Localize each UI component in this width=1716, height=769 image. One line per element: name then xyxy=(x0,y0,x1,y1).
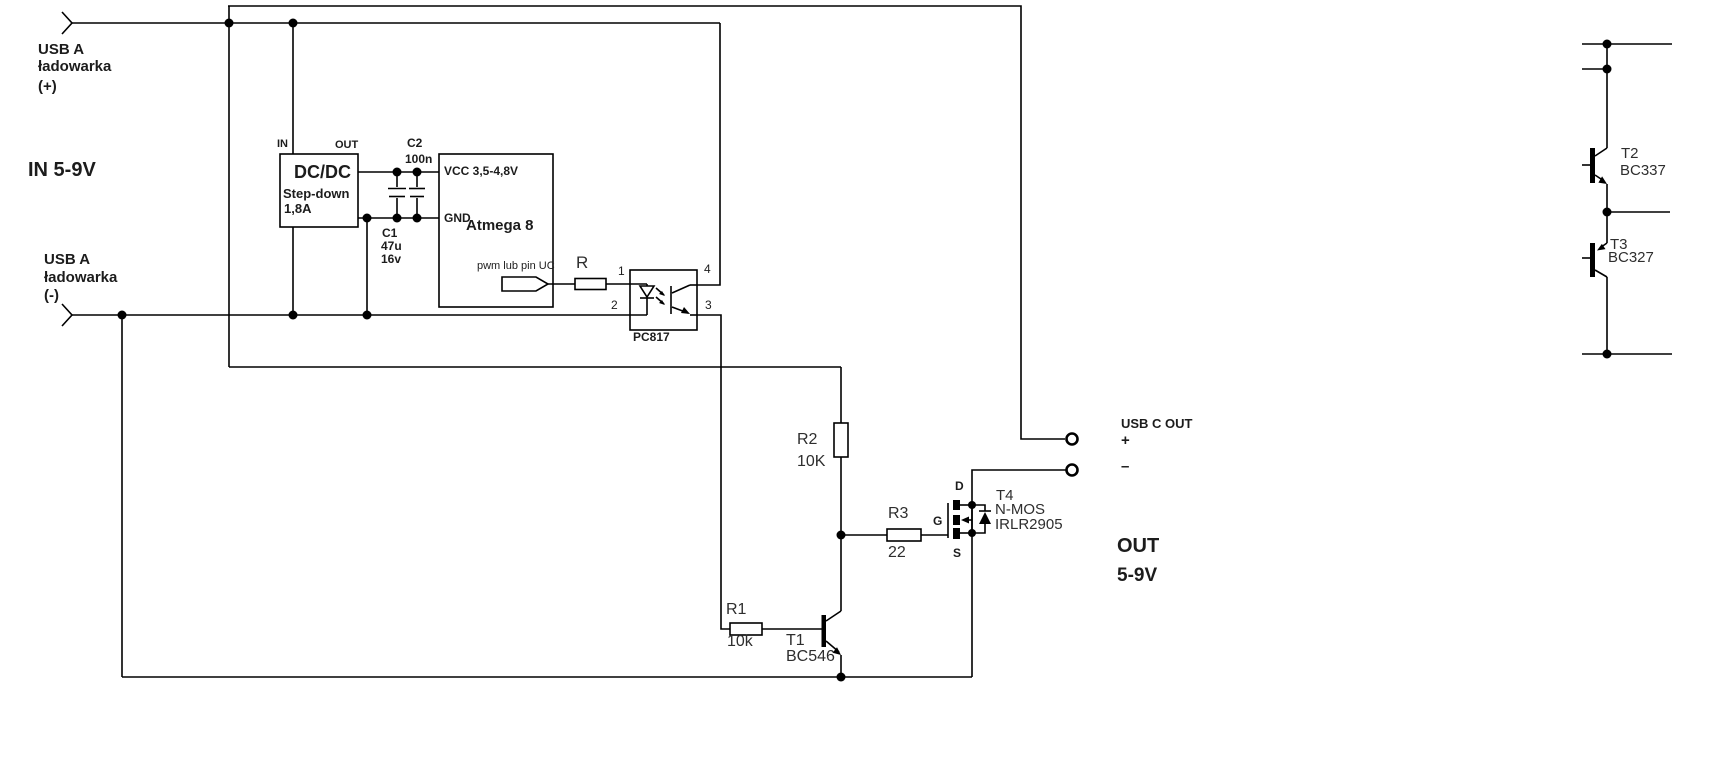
mcu-name-label: Atmega 8 xyxy=(466,218,534,233)
usb-c-out-title: USB C OUT xyxy=(1121,417,1193,430)
t4-source-label: S xyxy=(953,547,961,559)
usb-a-plus-label-3: (+) xyxy=(38,79,57,94)
dcdc-pin-out-label: OUT xyxy=(335,140,358,151)
opto-pin4-label: 4 xyxy=(704,263,711,275)
r3-name-label: R3 xyxy=(888,506,908,522)
mcu-pwm-note-label: pwm lub pin UC xyxy=(477,261,555,272)
pwm-output-tag xyxy=(502,277,548,291)
r2-name-label: R2 xyxy=(797,432,817,448)
usb-a-plus-label-2: ładowarka xyxy=(38,59,111,74)
mcu-vcc-label: VCC 3,5-4,8V xyxy=(444,165,518,177)
output-label: OUT xyxy=(1117,536,1159,556)
schematic-page: USB A ładowarka (+) IN 5-9V USB A ładowa… xyxy=(0,0,1716,769)
optocoupler-pc817-symbol xyxy=(630,270,697,330)
r3-value-label: 22 xyxy=(888,545,906,561)
driver-stage-wires xyxy=(1582,44,1672,354)
usb-a-minus-connector-icon xyxy=(62,304,72,326)
r1-value-label: 10k xyxy=(727,634,753,650)
opto-pin1-label: 1 xyxy=(618,265,625,277)
c1-value-label: 47u xyxy=(381,240,402,252)
c1-voltage-label: 16v xyxy=(381,253,401,265)
transistor-t3-symbol xyxy=(1590,243,1607,277)
c2-value-label: 100n xyxy=(405,153,432,165)
t1-name-label: T1 xyxy=(786,633,805,649)
usb-a-minus-label-1: USB A xyxy=(44,252,90,267)
r1-name-label: R1 xyxy=(726,602,746,618)
dcdc-pin-in-label: IN xyxy=(277,139,288,150)
dcdc-current-label: 1,8A xyxy=(284,202,311,215)
usb-c-plus-terminal xyxy=(1067,434,1078,445)
usb-a-plus-connector-icon xyxy=(62,12,72,34)
resistor-r3-symbol xyxy=(887,529,921,541)
resistor-r-symbol xyxy=(575,279,606,290)
resistor-r2-symbol xyxy=(834,423,848,457)
t4-drain-label: D xyxy=(955,480,964,492)
wires xyxy=(72,6,1066,677)
t4-part-label: IRLR2905 xyxy=(995,517,1063,532)
t3-part-label: BC327 xyxy=(1608,250,1654,265)
usb-c-minus-terminal xyxy=(1067,465,1078,476)
t4-type-label: N-MOS xyxy=(995,502,1045,517)
junction-dots xyxy=(118,19,1612,682)
opto-name-label: PC817 xyxy=(633,331,670,343)
c2-name-label: C2 xyxy=(407,137,422,149)
t2-name-label: T2 xyxy=(1621,146,1639,161)
usb-c-plus-label: + xyxy=(1121,433,1130,448)
schematic-canvas xyxy=(0,0,1716,769)
t2-part-label: BC337 xyxy=(1620,163,1666,178)
r2-value-label: 10K xyxy=(797,454,825,470)
usb-a-minus-label-2: ładowarka xyxy=(44,270,117,285)
usb-c-minus-label: – xyxy=(1121,459,1129,474)
transistor-t2-symbol xyxy=(1590,148,1607,184)
input-voltage-label: IN 5-9V xyxy=(28,160,96,180)
opto-pin3-label: 3 xyxy=(705,299,712,311)
t4-gate-label: G xyxy=(933,515,942,527)
dcdc-name-label: DC/DC xyxy=(294,163,351,181)
capacitor-c2-symbol xyxy=(409,172,425,218)
c1-name-label: C1 xyxy=(382,227,397,239)
opto-pin2-label: 2 xyxy=(611,299,618,311)
usb-a-plus-label-1: USB A xyxy=(38,42,84,57)
capacitor-c1-symbol xyxy=(388,172,406,218)
t1-part-label: BC546 xyxy=(786,649,835,665)
resistor-r-label: R xyxy=(576,254,588,271)
output-voltage-label: 5-9V xyxy=(1117,566,1157,585)
usb-a-minus-label-3: (-) xyxy=(44,288,59,303)
dcdc-type-label: Step-down xyxy=(283,187,349,200)
